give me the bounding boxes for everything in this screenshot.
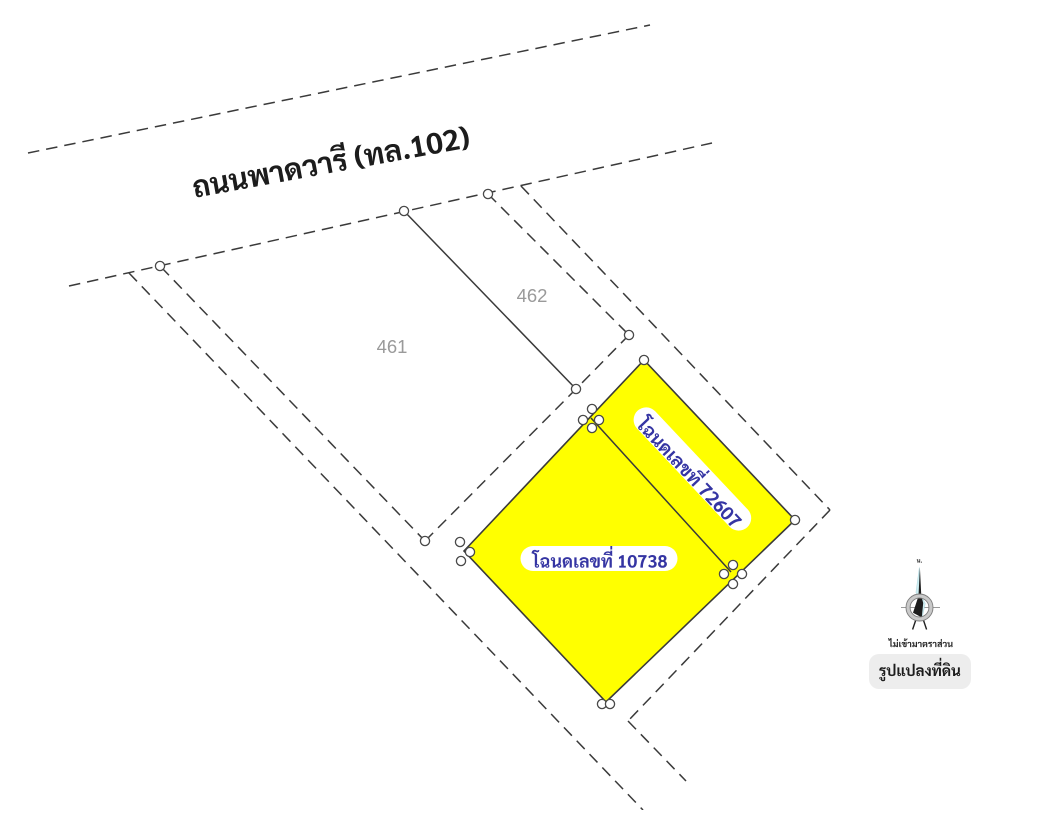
svg-text:462: 462 bbox=[517, 285, 548, 306]
svg-text:461: 461 bbox=[377, 336, 408, 357]
